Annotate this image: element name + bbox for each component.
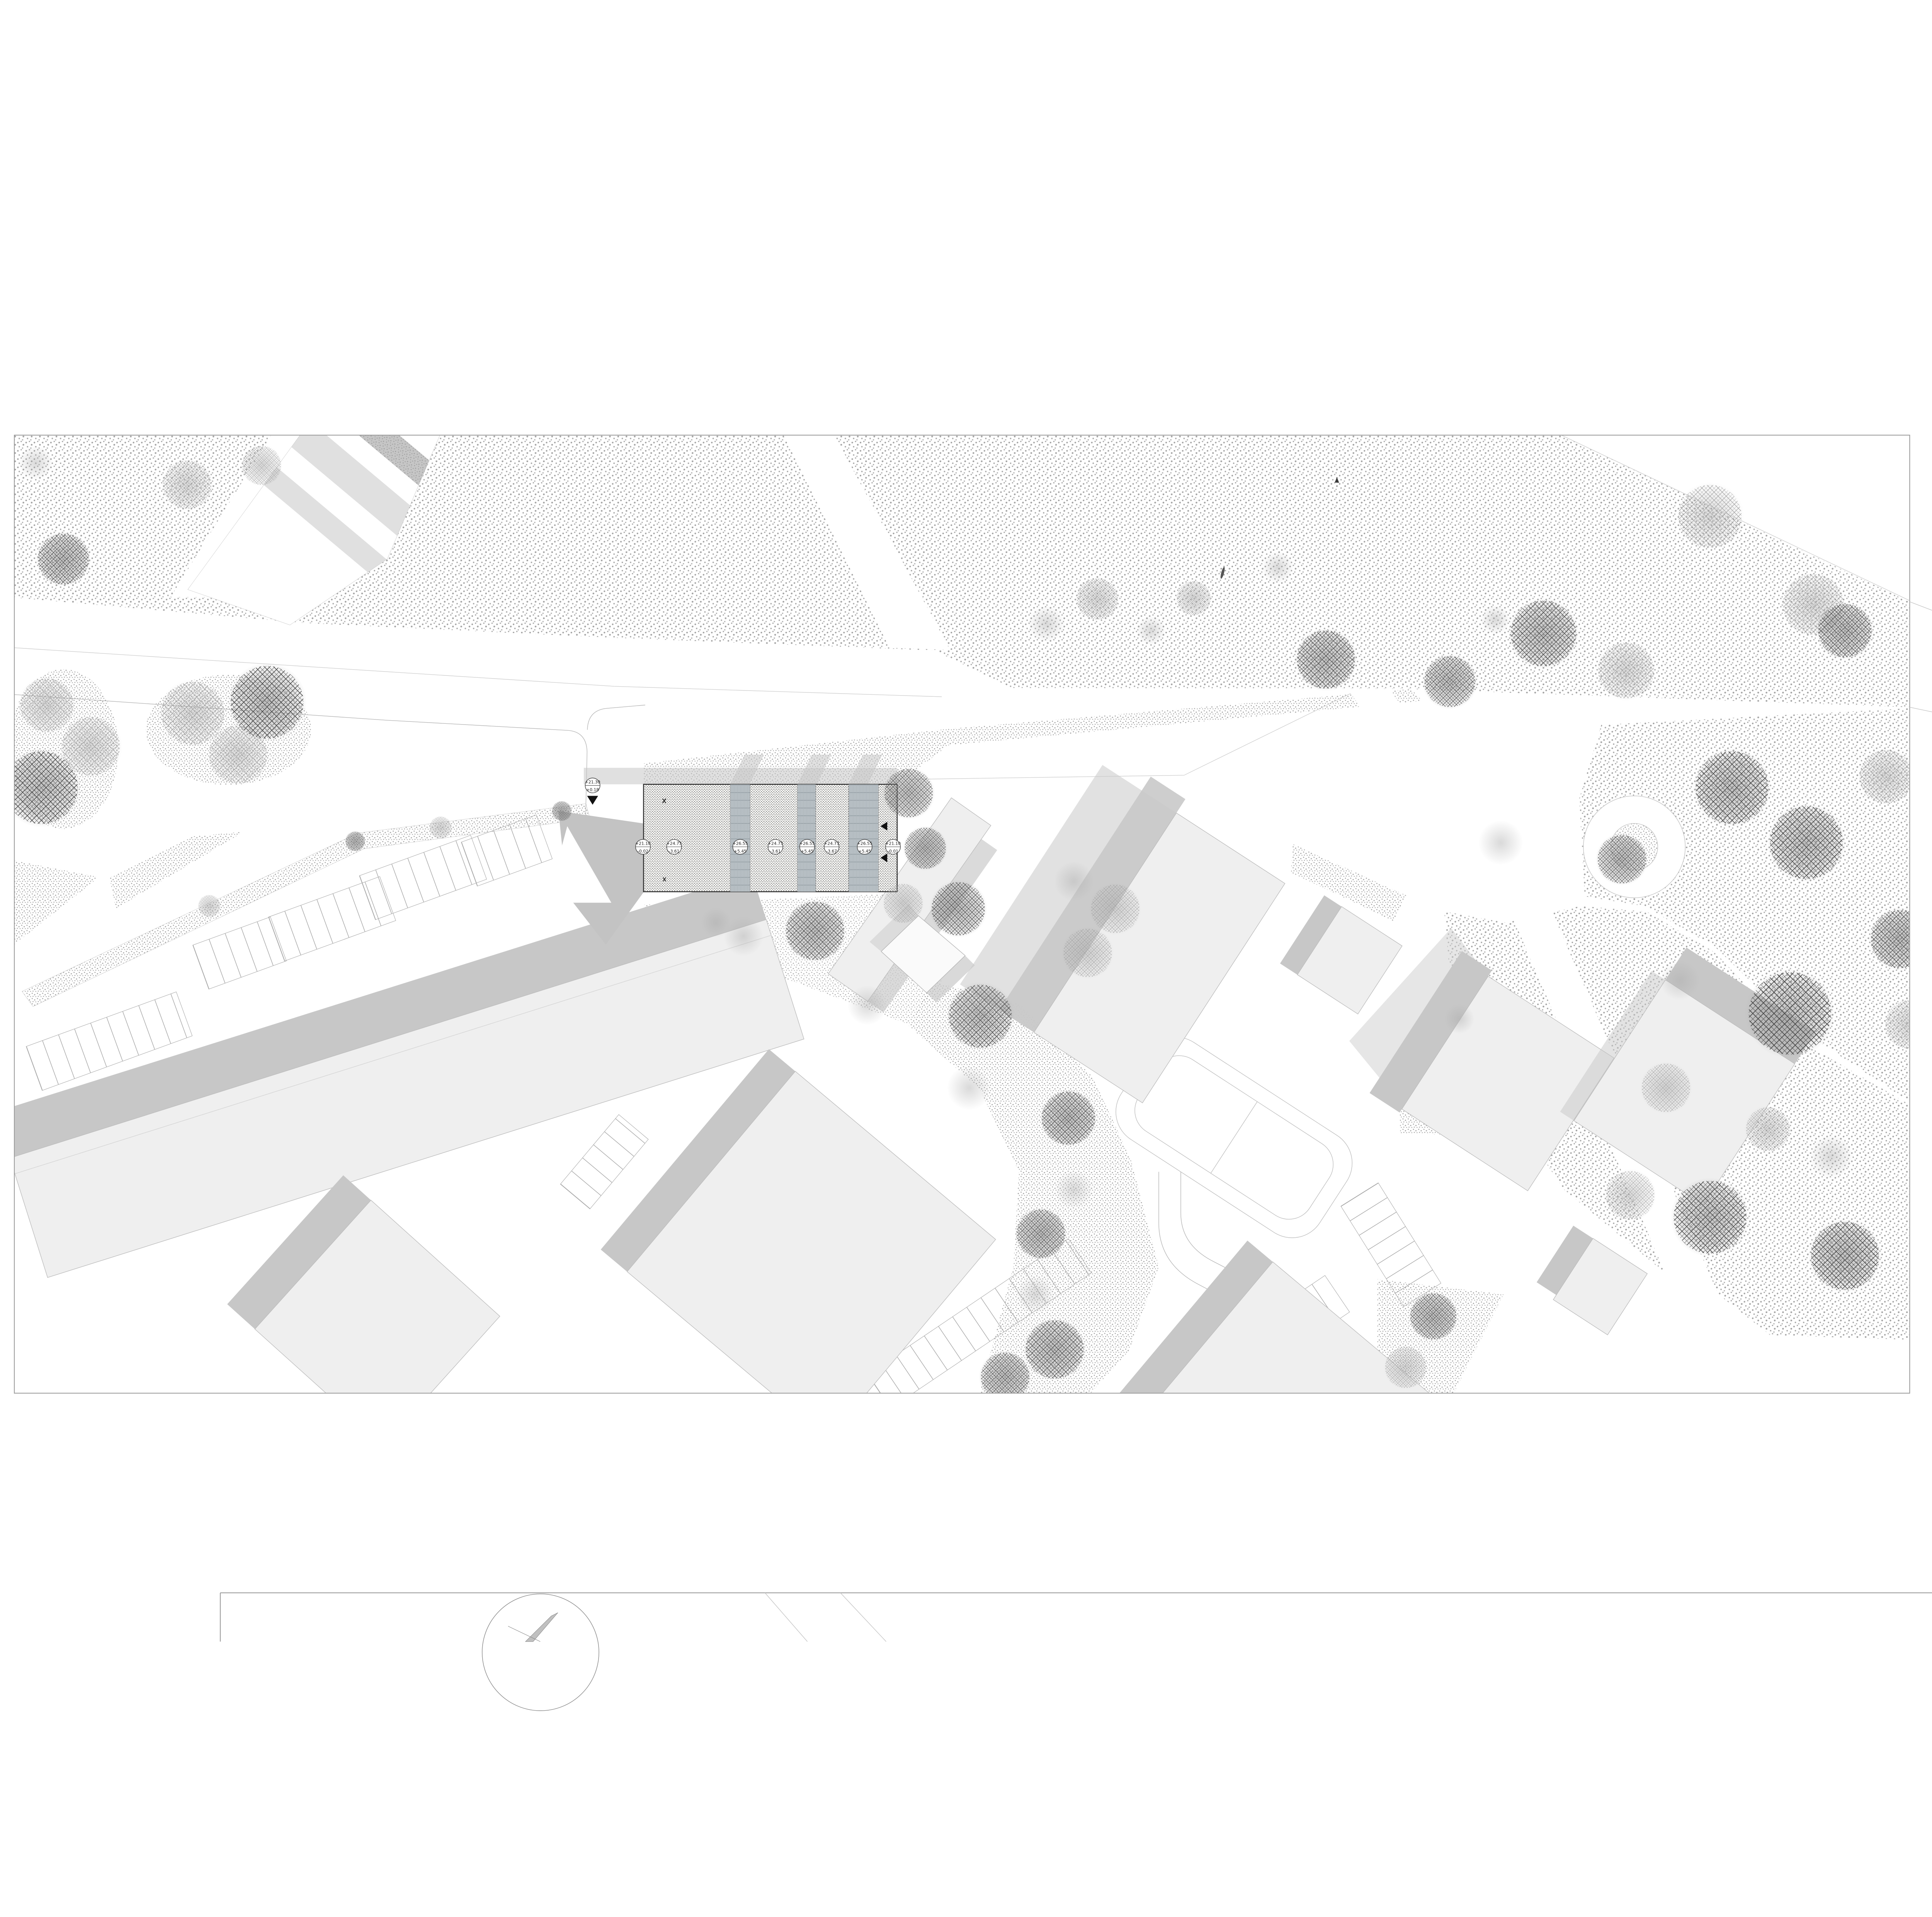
elevation-marker: +24.73-3.61: [667, 839, 682, 854]
tree-icon: [429, 816, 452, 840]
elevation-marker: +26.55+5.45: [799, 839, 815, 854]
site-plan: +21.30+0.18 +21.10-0.02 +24.73-3.61 +26.…: [0, 0, 1932, 1917]
tree-icon: [1639, 1061, 1692, 1114]
svg-text:-0.02: -0.02: [638, 849, 648, 854]
svg-text:+26.55: +26.55: [733, 841, 748, 846]
tree-icon: [1480, 605, 1510, 634]
tree-icon: [1014, 1207, 1067, 1260]
svg-text:+26.55: +26.55: [799, 841, 815, 846]
svg-text:+0.18: +0.18: [586, 788, 599, 793]
tree-icon: [1422, 654, 1478, 709]
tree-icon: [197, 894, 221, 918]
svg-text:+5.45: +5.45: [858, 849, 871, 854]
tree-icon: [1692, 748, 1772, 827]
elevation-marker: +26.55+5.45: [857, 839, 872, 854]
tree-icon: [1676, 482, 1745, 551]
tree-icon: [903, 826, 947, 871]
tree-icon: [946, 982, 1015, 1051]
tree-icon: [1767, 803, 1846, 882]
tree-icon: [1595, 833, 1648, 886]
tree-icon: [19, 445, 53, 480]
roof-skylight-band: [730, 784, 750, 892]
svg-text:+26.55: +26.55: [857, 841, 872, 846]
tree-icon: [929, 880, 988, 938]
tree-icon: [1408, 1291, 1458, 1342]
tree-icon: [1445, 1004, 1475, 1034]
svg-text:+5.45: +5.45: [801, 849, 813, 854]
svg-text:-3.61: -3.61: [669, 849, 680, 854]
tree-icon: [1015, 1274, 1055, 1314]
tree-icon: [1596, 640, 1656, 701]
elevation-marker: +21.30+0.18: [585, 778, 600, 793]
elevation-marker: +21.10-0.01: [885, 839, 901, 854]
tree-icon: [1816, 602, 1874, 660]
tree-icon: [1808, 1219, 1882, 1293]
tree-icon: [1054, 1170, 1094, 1209]
elevation-marker: +26.55+5.45: [733, 839, 748, 854]
tree-icon: [345, 831, 366, 852]
tree-icon: [1604, 1169, 1657, 1222]
tree-icon: [1023, 1318, 1086, 1381]
tree-icon: [1660, 961, 1700, 1000]
svg-text:-3.67: -3.67: [826, 849, 837, 854]
tree-icon: [1262, 551, 1294, 583]
tree-icon: [1294, 628, 1357, 691]
tree-icon: [882, 882, 924, 924]
tree-icon: [783, 899, 847, 963]
tree-icon: [1857, 748, 1915, 806]
elevation-marker: +24.73-3.67: [824, 839, 839, 854]
tree-icon: [1745, 968, 1835, 1058]
tree-icon: [1061, 926, 1114, 979]
svg-text:+5.45: +5.45: [734, 849, 747, 854]
tree-icon: [1670, 1177, 1750, 1257]
tree-icon: [1028, 605, 1065, 642]
tree-icon: [1809, 1135, 1853, 1179]
tree-icon: [848, 985, 888, 1025]
svg-text:-0.01: -0.01: [888, 849, 898, 854]
tree-icon: [1136, 616, 1166, 646]
tree-icon: [701, 908, 731, 937]
tree-icon: [36, 531, 91, 587]
svg-text:+21.10: +21.10: [885, 841, 901, 846]
roof-skylight-band: [798, 784, 816, 892]
tree-icon: [882, 767, 935, 820]
elevation-marker: +24.73-3.61: [768, 839, 783, 854]
tree-icon: [1039, 1089, 1098, 1147]
svg-text:+24.73: +24.73: [768, 841, 783, 846]
tree-icon: [1383, 1345, 1428, 1390]
tree-icon: [161, 458, 214, 511]
tree-icon: [1075, 577, 1120, 621]
tree-icon: [1744, 1105, 1792, 1153]
svg-text:+21.30: +21.30: [585, 780, 600, 785]
tree-icon: [1175, 580, 1212, 617]
tree-icon: [947, 1065, 992, 1110]
tree-icon: [1508, 598, 1579, 669]
roof-skylight-band: [849, 784, 878, 892]
tree-icon: [240, 444, 282, 486]
tree-icon: [228, 663, 307, 742]
svg-text:+21.10: +21.10: [635, 841, 651, 846]
tree-icon: [1054, 861, 1094, 901]
svg-text:+24.73: +24.73: [824, 841, 839, 846]
svg-text:-3.61: -3.61: [770, 849, 781, 854]
svg-text:+24.73: +24.73: [667, 841, 682, 846]
tree-icon: [1478, 820, 1523, 865]
elevation-marker: +21.10-0.02: [635, 839, 651, 854]
tree-icon: [551, 801, 572, 822]
tree-icon: [59, 714, 122, 778]
tree-icon: [1089, 882, 1142, 935]
